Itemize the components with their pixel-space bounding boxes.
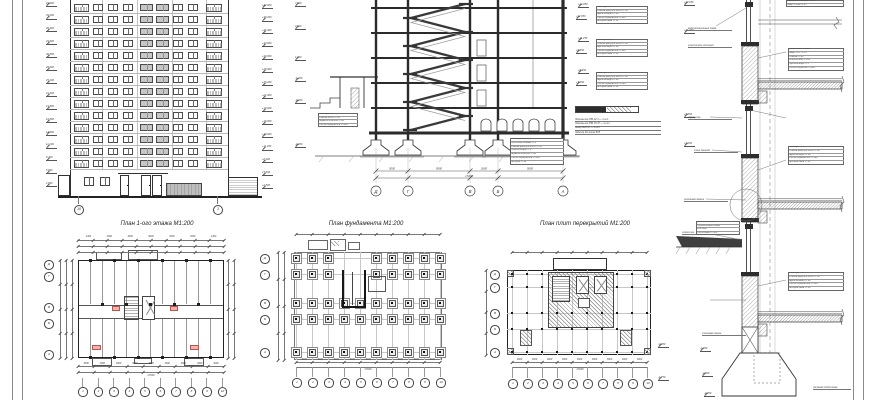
elevation-mark-line bbox=[658, 380, 669, 381]
axis-circle: Д bbox=[490, 270, 500, 280]
dim-value: 3000 bbox=[181, 363, 186, 365]
facade-window-mullion bbox=[98, 40, 99, 47]
facade-balcony-rail bbox=[207, 91, 222, 95]
facade-floor-line bbox=[70, 133, 228, 134]
annotation-label: цокольная панель bbox=[684, 198, 728, 202]
plan1-pier bbox=[209, 356, 212, 359]
dim-value: 27000 bbox=[365, 369, 372, 372]
dim-tick bbox=[226, 356, 229, 359]
door-handle-dot bbox=[127, 185, 128, 186]
facade-floor-line bbox=[70, 49, 228, 50]
facade-canopy bbox=[118, 173, 168, 174]
elevation-mark-line bbox=[658, 347, 669, 348]
elevation-mark-line bbox=[262, 33, 273, 34]
axis-circle: 7 bbox=[171, 387, 180, 396]
plan1-pier bbox=[185, 259, 188, 262]
slab-column bbox=[556, 328, 559, 331]
slab-column bbox=[511, 286, 514, 289]
facade-balcony-mullion bbox=[214, 136, 215, 140]
facade-window-mullion bbox=[147, 160, 148, 167]
facade-window-mullion bbox=[193, 100, 194, 107]
door-handle-dot bbox=[149, 185, 150, 186]
facade-window-mullion bbox=[113, 100, 114, 107]
facade-window-mullion bbox=[128, 76, 129, 83]
spec-row: Плита покрытия — 220 bbox=[789, 67, 844, 71]
facade-window-mullion bbox=[163, 100, 164, 107]
elevation-mark-line bbox=[46, 148, 57, 149]
sheet-frame-line bbox=[22, 0, 23, 400]
facade-balcony-mullion bbox=[82, 16, 83, 20]
foundation-pit-annex bbox=[368, 276, 386, 292]
dim-value: 3000 bbox=[132, 363, 137, 365]
facade-balcony-mullion bbox=[214, 28, 215, 32]
facade-balcony-rail bbox=[75, 55, 89, 59]
elevation-mark-line bbox=[295, 29, 306, 30]
elevation-mark-line bbox=[46, 83, 57, 84]
elevation-mark-line bbox=[576, 53, 587, 54]
footing-column-dot bbox=[327, 257, 329, 259]
elevation-mark-line bbox=[295, 103, 306, 104]
elevation-mark-line bbox=[262, 85, 273, 86]
dim-value: 3000 bbox=[148, 363, 153, 365]
axis-circle: 1 bbox=[292, 378, 301, 387]
facade-storefront bbox=[166, 183, 202, 196]
axis-circle: Д bbox=[260, 254, 270, 264]
axis-circle: 2 bbox=[308, 378, 317, 387]
facade-balcony-mullion bbox=[82, 76, 83, 80]
footing-column-dot bbox=[327, 318, 329, 320]
elevator-pit bbox=[342, 270, 366, 308]
facade-window-mullion bbox=[98, 160, 99, 167]
elevation-mark-line bbox=[46, 70, 57, 71]
spec-row: Ковёр 4 слоя — 15 bbox=[787, 4, 844, 8]
slab-column bbox=[586, 351, 589, 354]
footing-column-dot bbox=[375, 302, 377, 304]
annotation-label: стеновая панель bbox=[702, 332, 746, 336]
elevation-mark-line bbox=[262, 175, 273, 176]
elevation-mark-line bbox=[576, 85, 587, 86]
axis-circle: 9 bbox=[420, 378, 429, 387]
elevation-mark-line bbox=[576, 19, 587, 20]
elevation-mark-line bbox=[46, 57, 57, 58]
facade-window-mullion bbox=[193, 88, 194, 95]
dim-value: 3000 bbox=[397, 359, 402, 361]
slab-column bbox=[511, 328, 514, 331]
slab-stair bbox=[552, 276, 570, 302]
dim-value: 3000 bbox=[349, 359, 354, 361]
facade-window-mullion bbox=[178, 124, 179, 131]
axis-circle: Д bbox=[44, 260, 54, 270]
sheet-frame-line bbox=[863, 0, 864, 400]
axis-circle: 8 bbox=[613, 379, 622, 388]
facade-balcony-mullion bbox=[214, 88, 215, 92]
facade-window-mullion bbox=[193, 136, 194, 143]
footing-column-dot bbox=[423, 351, 425, 353]
axis-circle: 10 bbox=[74, 205, 84, 215]
facade-balcony-mullion bbox=[214, 52, 215, 56]
facade-window-mullion bbox=[98, 64, 99, 71]
footing-column-dot bbox=[423, 302, 425, 304]
slab-top-bump bbox=[553, 258, 607, 270]
facade-window-mullion bbox=[163, 136, 164, 143]
dim-tick bbox=[91, 238, 94, 241]
dim-tick bbox=[91, 244, 94, 247]
facade-balcony-mullion bbox=[214, 64, 215, 68]
elevation-mark-line bbox=[262, 21, 273, 22]
dim-value: 3000 bbox=[100, 363, 105, 365]
footing-column-dot bbox=[311, 257, 313, 259]
facade-window-mullion bbox=[147, 52, 148, 59]
plan1-pier bbox=[137, 356, 140, 359]
dim-value: 3000 bbox=[127, 236, 132, 238]
facade-window-mullion bbox=[193, 4, 194, 11]
facade-window-mullion bbox=[163, 148, 164, 155]
footing-column-dot bbox=[327, 351, 329, 353]
plan1-sanitary-unit bbox=[170, 306, 178, 311]
facade-balcony-rail bbox=[207, 151, 222, 155]
facade-window-mullion bbox=[163, 40, 164, 47]
svg-text:3000: 3000 bbox=[389, 167, 396, 171]
elevation-mark-line bbox=[702, 376, 713, 377]
plan1-sanitary-unit bbox=[190, 345, 199, 350]
footing-column-dot bbox=[391, 302, 393, 304]
facade-window-mullion bbox=[113, 64, 114, 71]
footing-column-dot bbox=[407, 351, 409, 353]
dim-tick bbox=[222, 250, 225, 253]
facade-window-mullion bbox=[147, 112, 148, 119]
footing-column-dot bbox=[311, 318, 313, 320]
door-handle-dot bbox=[160, 185, 161, 186]
facade-balcony-rail bbox=[207, 79, 222, 83]
elevation-mark-line bbox=[295, 6, 306, 7]
facade-floor-line bbox=[70, 97, 228, 98]
plan1-pier bbox=[185, 356, 188, 359]
facade-window-mullion bbox=[113, 4, 114, 11]
dim-value: 3000 bbox=[190, 236, 195, 238]
facade-window-mullion bbox=[178, 76, 179, 83]
annotation-label: стык панелей bbox=[694, 149, 738, 153]
plan1-stair bbox=[124, 296, 139, 320]
facade-window-mullion bbox=[113, 124, 114, 131]
facade-window-mullion bbox=[98, 76, 99, 83]
facade-window-mullion bbox=[178, 112, 179, 119]
facade-window-mullion bbox=[113, 16, 114, 23]
axis-circle: Б bbox=[490, 325, 500, 335]
axis-circle: 5 bbox=[356, 378, 365, 387]
elevation-mark-line bbox=[262, 111, 273, 112]
facade-balcony-mullion bbox=[82, 88, 83, 92]
footing-column-dot bbox=[391, 351, 393, 353]
dim-value: 3000 bbox=[333, 359, 338, 361]
spec-row: Затирка швов — 10 bbox=[597, 20, 648, 24]
facade-window-mullion bbox=[178, 52, 179, 59]
axis-circle: Г bbox=[260, 270, 270, 280]
footing-column-dot bbox=[407, 302, 409, 304]
elevation-mark-line bbox=[295, 60, 306, 61]
facade-window-mullion bbox=[193, 40, 194, 47]
axis-circle: 5 bbox=[568, 379, 577, 388]
axis-circle: В bbox=[490, 309, 500, 319]
dim-tick bbox=[190, 370, 193, 373]
footing-column-dot bbox=[295, 318, 297, 320]
elevation-mark-line bbox=[700, 351, 711, 352]
elevation-mark-line bbox=[262, 150, 273, 151]
facade-window-mullion bbox=[128, 160, 129, 167]
facade-floor-line bbox=[70, 157, 228, 158]
dim-tick bbox=[232, 356, 235, 359]
plan1-pier bbox=[197, 303, 200, 306]
axis-leader bbox=[78, 196, 79, 204]
facade-balcony-mullion bbox=[82, 52, 83, 56]
footing-column-dot bbox=[375, 351, 377, 353]
elevation-mark-line bbox=[46, 44, 57, 45]
facade-window-mullion bbox=[128, 100, 129, 107]
svg-text:В: В bbox=[469, 189, 472, 194]
facade-window-mullion bbox=[98, 124, 99, 131]
slab-column bbox=[631, 312, 634, 315]
facade-window-mullion bbox=[113, 76, 114, 83]
axis-circle: 3 bbox=[324, 378, 333, 387]
annotation-label: водоизоляционный ковёр bbox=[688, 27, 732, 31]
dim-value: 3000 bbox=[116, 363, 121, 365]
footing-column-dot bbox=[359, 318, 361, 320]
elevation-mark-line bbox=[295, 81, 306, 82]
slab-column bbox=[541, 312, 544, 315]
svg-text:5800: 5800 bbox=[436, 167, 443, 171]
plan1-pier bbox=[161, 259, 164, 262]
axis-circle: 6 bbox=[156, 387, 165, 396]
dim-value: 3000 bbox=[301, 359, 306, 361]
slab-column bbox=[616, 328, 619, 331]
slab-column bbox=[571, 328, 574, 331]
dim-tick bbox=[484, 353, 487, 356]
axis-circle: 8 bbox=[404, 378, 413, 387]
elevation-mark-line bbox=[46, 160, 57, 161]
axis-circle: В bbox=[44, 303, 54, 313]
dim-tick bbox=[164, 238, 167, 241]
footing-column-dot bbox=[391, 273, 393, 275]
elevation-mark-line bbox=[578, 73, 589, 74]
dim-tick bbox=[164, 250, 167, 253]
dim-value: 3000 bbox=[622, 359, 627, 361]
footing-column-dot bbox=[439, 257, 441, 259]
footing-column-dot bbox=[391, 257, 393, 259]
dim-value: 6000 bbox=[148, 236, 153, 238]
foundation-entrance-pad bbox=[348, 242, 360, 250]
spec-row: Затирка — 10 bbox=[511, 161, 564, 165]
annotation-label: перемычка bbox=[688, 116, 732, 120]
facade-window-mullion bbox=[89, 177, 90, 186]
facade-window-mullion bbox=[147, 88, 148, 95]
facade-window-mullion bbox=[178, 4, 179, 11]
facade-balcony-mullion bbox=[82, 4, 83, 8]
facade-window-mullion bbox=[113, 52, 114, 59]
facade-balcony-rail bbox=[75, 19, 89, 23]
footing-column-dot bbox=[311, 302, 313, 304]
slab-column bbox=[631, 351, 634, 354]
facade-window-mullion bbox=[163, 28, 164, 35]
facade-window-mullion bbox=[147, 40, 148, 47]
slab-column bbox=[601, 351, 604, 354]
plan1-entrance-top bbox=[96, 252, 122, 260]
facade-balcony-rail bbox=[75, 67, 89, 71]
dim-tick bbox=[164, 244, 167, 247]
facade-window-mullion bbox=[147, 148, 148, 155]
dim-value: 3000 bbox=[637, 359, 642, 361]
axis-circle: 4 bbox=[125, 387, 134, 396]
elevation-mark-line bbox=[578, 7, 589, 8]
facade-balcony-rail bbox=[207, 163, 222, 167]
facade-window-mullion bbox=[128, 88, 129, 95]
facade-window-mullion bbox=[128, 136, 129, 143]
facade-window-mullion bbox=[163, 88, 164, 95]
axis-circle: 4 bbox=[340, 378, 349, 387]
facade-balcony-rail bbox=[207, 43, 222, 47]
building-section: 300058002600580017200ДГВБА bbox=[293, 0, 585, 200]
footing-column-dot bbox=[295, 257, 297, 259]
dim-tick bbox=[645, 250, 648, 253]
slab-shear-wall bbox=[620, 330, 632, 346]
facade-window-mullion bbox=[193, 124, 194, 131]
plan1-pier bbox=[209, 259, 212, 262]
facade-balcony-mullion bbox=[82, 124, 83, 128]
dim-value: 3000 bbox=[413, 359, 418, 361]
slab-column bbox=[541, 273, 544, 276]
plan1-pier bbox=[161, 356, 164, 359]
dim-tick bbox=[276, 358, 279, 361]
axis-circle: В bbox=[260, 299, 270, 309]
facade-window-mullion bbox=[193, 112, 194, 119]
slab-column bbox=[541, 351, 544, 354]
facade-window-mullion bbox=[128, 28, 129, 35]
plan1-pier bbox=[113, 356, 116, 359]
facade-window-mullion bbox=[178, 64, 179, 71]
foundation-title: План фундамента М1:200 bbox=[329, 221, 404, 228]
axis-circle: 2 bbox=[523, 379, 532, 388]
facade-balcony-mullion bbox=[82, 136, 83, 140]
facade-window-mullion bbox=[98, 88, 99, 95]
svg-text:Д: Д bbox=[373, 189, 377, 194]
slab-column bbox=[646, 328, 649, 331]
facade-balcony-mullion bbox=[82, 28, 83, 32]
plan1-pier bbox=[113, 259, 116, 262]
footing-column-dot bbox=[423, 257, 425, 259]
axis-circle: 7 bbox=[598, 379, 607, 388]
facade-balcony-rail bbox=[75, 31, 89, 35]
axis-circle: 6 bbox=[372, 378, 381, 387]
footing-column-dot bbox=[423, 318, 425, 320]
facade-balcony-mullion bbox=[82, 40, 83, 44]
slab-column bbox=[511, 312, 514, 315]
facade-window-mullion bbox=[113, 88, 114, 95]
axis-circle: 1 bbox=[508, 379, 517, 388]
facade-balcony-rail bbox=[75, 91, 89, 95]
facade-window-mullion bbox=[113, 136, 114, 143]
slab-column bbox=[541, 328, 544, 331]
footing-column-dot bbox=[423, 273, 425, 275]
elevator-pit-line bbox=[352, 272, 353, 305]
facade-window-mullion bbox=[147, 100, 148, 107]
facade-window-mullion bbox=[128, 64, 129, 71]
slab-column bbox=[631, 286, 634, 289]
footing-column-dot bbox=[327, 273, 329, 275]
facade-balcony-mullion bbox=[82, 64, 83, 68]
annotation-label: песчаная подготовка bbox=[813, 386, 851, 390]
footing-column-dot bbox=[391, 318, 393, 320]
footing-column-dot bbox=[407, 318, 409, 320]
facade-balcony-rail bbox=[75, 43, 89, 47]
spec-row: Плита перекрытия — 220 bbox=[319, 124, 358, 128]
sheet-frame-line bbox=[12, 0, 13, 400]
facade-balcony-mullion bbox=[214, 124, 215, 128]
elevation-mark-line bbox=[684, 146, 695, 147]
dim-tick bbox=[438, 232, 441, 235]
plan1-pier bbox=[149, 303, 152, 306]
facade-floor-line bbox=[70, 85, 228, 86]
footing-column-dot bbox=[295, 351, 297, 353]
facade-window-mullion bbox=[113, 28, 114, 35]
facade-window-mullion bbox=[193, 16, 194, 23]
elevation-mark-line bbox=[46, 135, 57, 136]
footing-column-dot bbox=[439, 302, 441, 304]
axis-circle: 4 bbox=[553, 379, 562, 388]
axis-circle: Б bbox=[260, 315, 270, 325]
dim-value: 3000 bbox=[165, 363, 170, 365]
facade-balcony-mullion bbox=[214, 40, 215, 44]
elevation-mark-line bbox=[46, 96, 57, 97]
facade-porch-left bbox=[58, 175, 70, 196]
facade-base-line bbox=[58, 196, 262, 198]
facade-window-mullion bbox=[193, 148, 194, 155]
dim-value: 3000 bbox=[517, 359, 522, 361]
facade-floor-line bbox=[70, 169, 228, 170]
facade-balcony-rail bbox=[207, 103, 222, 107]
footing-column-dot bbox=[439, 351, 441, 353]
elevation-mark-line bbox=[684, 5, 695, 6]
elevation-mark-line bbox=[262, 137, 273, 138]
slab-shear-wall bbox=[520, 330, 532, 346]
facade-window-mullion bbox=[193, 64, 194, 71]
plan1-pier bbox=[101, 303, 104, 306]
facade-balcony-rail bbox=[75, 163, 89, 167]
facade-balcony-rail bbox=[207, 55, 222, 59]
dim-value: 3000 bbox=[562, 359, 567, 361]
axis-circle: 1 bbox=[78, 387, 87, 396]
facade-window-mullion bbox=[128, 112, 129, 119]
footing-column-dot bbox=[311, 351, 313, 353]
dim-value: 3000 bbox=[547, 359, 552, 361]
facade-window-mullion bbox=[193, 76, 194, 83]
facade-window-mullion bbox=[178, 28, 179, 35]
slab-pilaster bbox=[644, 270, 651, 277]
footing-column-dot bbox=[375, 257, 377, 259]
facade-window-mullion bbox=[147, 64, 148, 71]
slab-column bbox=[586, 312, 589, 315]
facade-balcony-rail bbox=[207, 115, 222, 119]
facade-window-mullion bbox=[98, 16, 99, 23]
elevation-mark-line bbox=[262, 8, 273, 9]
dim-tick bbox=[645, 360, 648, 363]
facade-balcony-mullion bbox=[82, 100, 83, 104]
slab-column bbox=[526, 312, 529, 315]
facade-window-mullion bbox=[163, 16, 164, 23]
facade-balcony-rail bbox=[207, 67, 222, 71]
slab-column bbox=[556, 312, 559, 315]
facade-floor-line bbox=[70, 25, 228, 26]
elevation-mark-line bbox=[46, 31, 57, 32]
facade-window-mullion bbox=[128, 40, 129, 47]
foundation-entrance-hatch bbox=[331, 241, 339, 246]
